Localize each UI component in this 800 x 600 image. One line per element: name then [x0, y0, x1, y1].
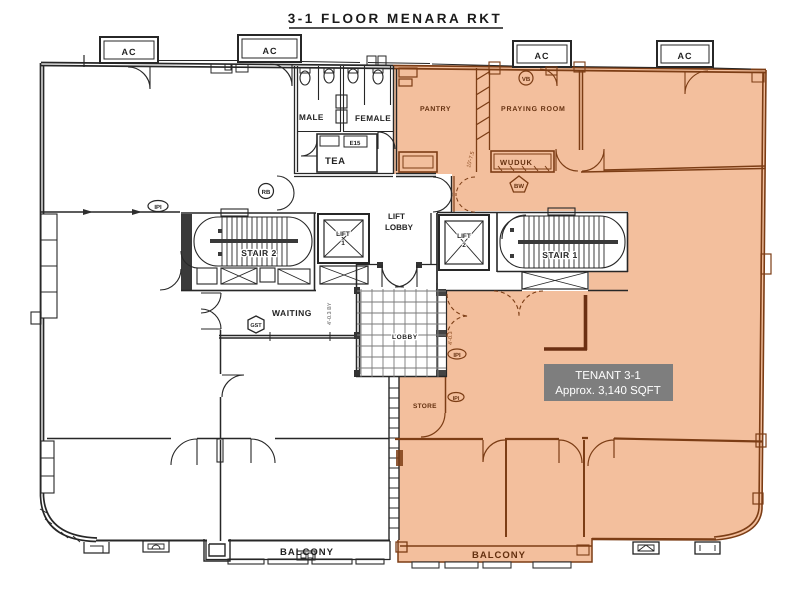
svg-text:STAIR 2: STAIR 2: [241, 248, 276, 258]
svg-text:AC: AC: [263, 46, 278, 56]
svg-text:WUDUK: WUDUK: [500, 158, 533, 167]
svg-text:TEA: TEA: [325, 156, 346, 167]
svg-text:AC: AC: [535, 51, 550, 61]
svg-text:IPI: IPI: [154, 204, 162, 211]
svg-text:MALE: MALE: [299, 113, 324, 122]
svg-text:RB: RB: [262, 189, 271, 196]
svg-text:VB: VB: [522, 76, 531, 83]
svg-text:WAITING: WAITING: [272, 308, 312, 318]
svg-text:FEMALE: FEMALE: [355, 114, 391, 123]
svg-text:E15: E15: [350, 140, 361, 147]
svg-text:LIFT: LIFT: [388, 212, 405, 221]
svg-text:LOBBY: LOBBY: [385, 223, 414, 232]
svg-text:4'-0.3 BY: 4'-0.3 BY: [327, 302, 333, 325]
svg-text:BALCONY: BALCONY: [280, 547, 334, 558]
svg-text:BALCONY: BALCONY: [472, 550, 526, 561]
svg-text:AC: AC: [678, 51, 693, 61]
svg-text:PANTRY: PANTRY: [420, 106, 451, 113]
svg-text:Approx. 3,140 SQFT: Approx. 3,140 SQFT: [555, 385, 660, 397]
svg-text:PRAYING ROOM: PRAYING ROOM: [501, 106, 566, 113]
svg-text:IPI: IPI: [453, 396, 460, 402]
svg-text:TENANT 3-1: TENANT 3-1: [575, 370, 641, 382]
svg-text:4'-0.3: 4'-0.3: [448, 331, 454, 345]
svg-text:LOBBY: LOBBY: [392, 334, 418, 341]
svg-text:AC: AC: [122, 47, 137, 57]
svg-text:IPI: IPI: [453, 352, 461, 359]
svg-text:LIFT: LIFT: [457, 233, 471, 240]
svg-text:2: 2: [462, 242, 466, 249]
svg-text:BW: BW: [514, 183, 524, 190]
svg-text:LIFT: LIFT: [336, 231, 350, 238]
svg-text:1: 1: [341, 240, 345, 247]
svg-text:STAIR 1: STAIR 1: [542, 250, 577, 260]
svg-text:GST: GST: [250, 323, 262, 329]
svg-text:STORE: STORE: [413, 403, 437, 410]
svg-text:3-1 FLOOR MENARA RKT: 3-1 FLOOR MENARA RKT: [288, 11, 503, 26]
